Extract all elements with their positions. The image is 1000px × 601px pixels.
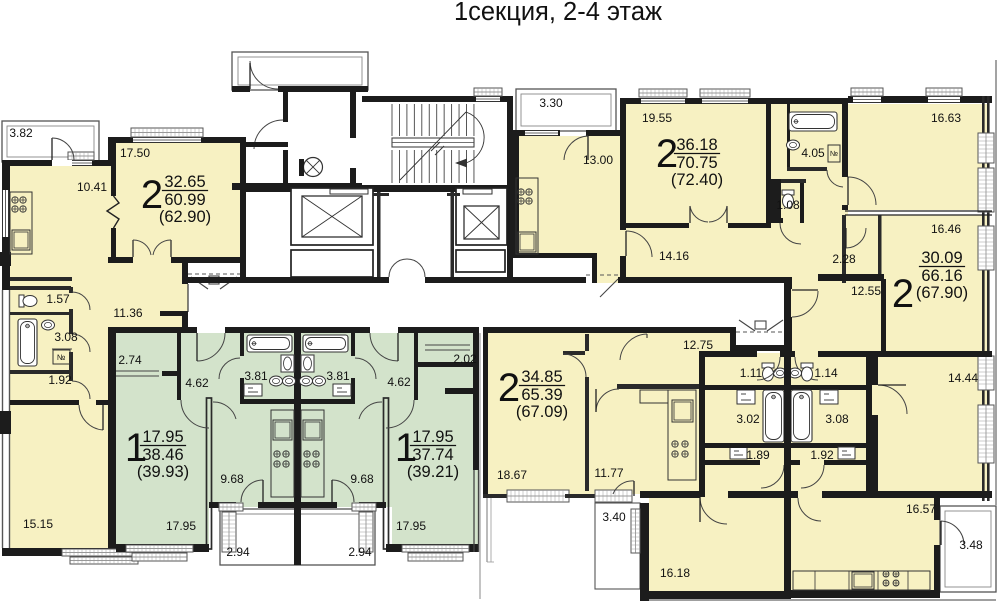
svg-text:№: № (57, 353, 66, 362)
svg-text:9.68: 9.68 (220, 472, 244, 486)
svg-text:66.16: 66.16 (921, 267, 962, 285)
svg-text:(62.90): (62.90) (159, 208, 211, 226)
svg-text:12.55: 12.55 (851, 284, 881, 298)
svg-text:4.05: 4.05 (801, 146, 825, 160)
svg-text:36.18: 36.18 (676, 136, 717, 154)
svg-text:14.16: 14.16 (659, 249, 689, 263)
svg-text:(67.90): (67.90) (916, 284, 968, 302)
svg-text:18.67: 18.67 (497, 468, 527, 482)
svg-text:4.62: 4.62 (387, 375, 411, 389)
svg-text:2.94: 2.94 (348, 545, 372, 559)
svg-text:1.89: 1.89 (746, 448, 770, 462)
svg-text:3.30: 3.30 (539, 96, 563, 110)
svg-text:3.81: 3.81 (326, 369, 350, 383)
svg-text:4.62: 4.62 (185, 376, 209, 390)
svg-text:3.08: 3.08 (54, 330, 78, 344)
svg-text:1.14: 1.14 (814, 366, 838, 380)
svg-text:16.57: 16.57 (906, 502, 936, 516)
svg-text:3.82: 3.82 (9, 126, 33, 140)
svg-text:2.74: 2.74 (118, 353, 142, 367)
svg-text:3.08: 3.08 (825, 412, 849, 426)
svg-text:3.81: 3.81 (244, 369, 268, 383)
svg-text:(72.40): (72.40) (671, 171, 723, 189)
svg-text:30.09: 30.09 (921, 249, 962, 267)
svg-text:1.08: 1.08 (776, 198, 800, 212)
svg-text:17.50: 17.50 (120, 146, 150, 160)
svg-text:3.02: 3.02 (736, 412, 760, 426)
svg-text:3.48: 3.48 (959, 538, 983, 552)
svg-text:37.74: 37.74 (412, 446, 453, 464)
svg-text:16.46: 16.46 (931, 222, 961, 236)
svg-text:2: 2 (892, 272, 914, 316)
svg-text:34.85: 34.85 (521, 368, 562, 386)
svg-text:1.11: 1.11 (740, 366, 763, 380)
svg-text:1секция, 2-4 этаж: 1секция, 2-4 этаж (454, 0, 662, 26)
svg-text:10.41: 10.41 (77, 180, 107, 194)
svg-text:65.39: 65.39 (521, 386, 562, 404)
svg-text:9.68: 9.68 (350, 472, 374, 486)
svg-text:2.28: 2.28 (832, 252, 856, 266)
svg-text:19.55: 19.55 (642, 111, 672, 125)
svg-text:60.99: 60.99 (164, 191, 205, 209)
svg-text:32.65: 32.65 (164, 173, 205, 191)
svg-text:14.44: 14.44 (948, 371, 978, 385)
svg-text:17.95: 17.95 (142, 428, 183, 446)
svg-text:(39.93): (39.93) (137, 463, 189, 481)
svg-text:17.95: 17.95 (396, 519, 426, 533)
svg-text:12.75: 12.75 (683, 338, 713, 352)
svg-text:70.75: 70.75 (676, 154, 717, 172)
svg-text:2.94: 2.94 (226, 545, 250, 559)
svg-text:13.00: 13.00 (583, 153, 613, 167)
svg-text:11.36: 11.36 (113, 306, 142, 320)
svg-text:17.95: 17.95 (166, 519, 196, 533)
svg-text:(39.21): (39.21) (407, 463, 459, 481)
svg-text:17.95: 17.95 (412, 428, 453, 446)
svg-text:16.63: 16.63 (931, 111, 961, 125)
svg-text:1.57: 1.57 (46, 292, 70, 306)
svg-text:16.18: 16.18 (660, 566, 690, 580)
svg-text:1.92: 1.92 (48, 373, 72, 387)
svg-text:2.02: 2.02 (453, 352, 477, 366)
svg-text:3.40: 3.40 (602, 510, 626, 524)
svg-text:11.77: 11.77 (594, 466, 623, 480)
svg-text:15.15: 15.15 (23, 517, 53, 531)
svg-text:№: № (830, 149, 838, 158)
svg-text:1.92: 1.92 (810, 448, 834, 462)
svg-text:38.46: 38.46 (142, 446, 183, 464)
svg-text:(67.09): (67.09) (516, 403, 568, 421)
